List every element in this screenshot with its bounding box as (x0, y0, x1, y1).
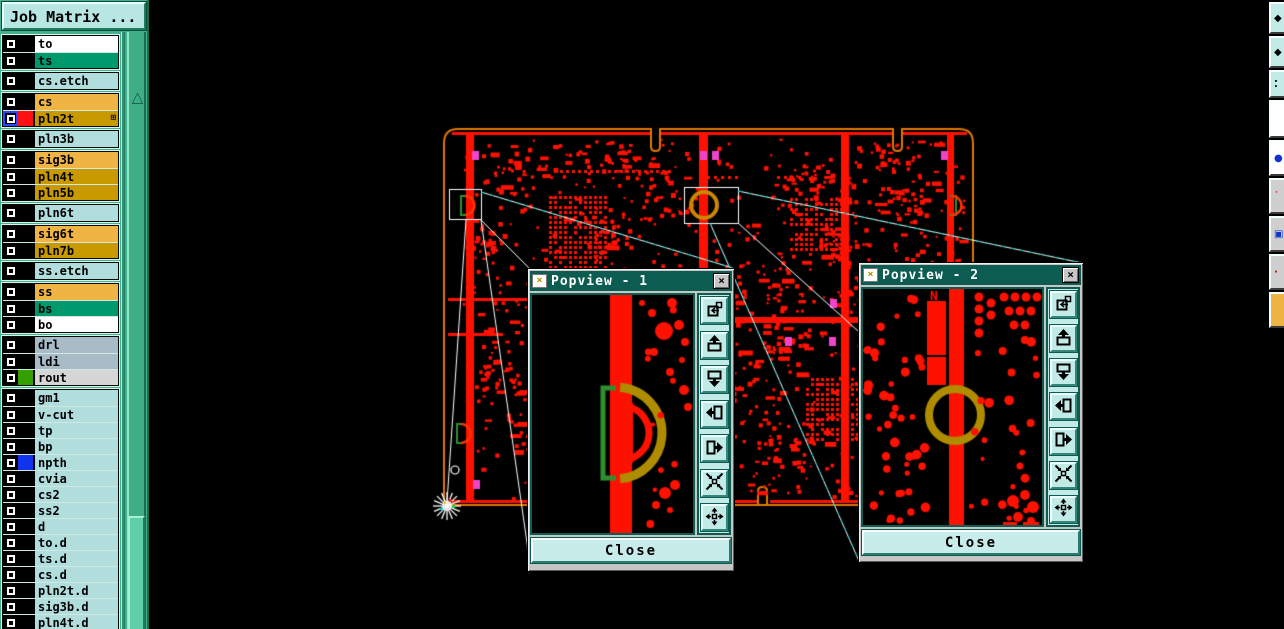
layer-color-swatch (18, 567, 33, 582)
zoom-out-button[interactable] (701, 504, 728, 531)
layer-checkbox[interactable] (3, 390, 18, 406)
side-button-1[interactable]: ◆ (1269, 2, 1284, 34)
detail-grid-icon[interactable]: ⊞ (111, 114, 116, 123)
layer-group: cs.etch (2, 72, 119, 90)
layer-label[interactable]: v-cut (33, 407, 118, 422)
zoom-out-button[interactable] (1050, 496, 1077, 523)
layer-group: ss.etch (2, 262, 119, 280)
checkbox-icon (7, 189, 15, 197)
layer-checkbox[interactable] (3, 583, 18, 598)
arrows-out-icon (1054, 498, 1073, 520)
layer-label[interactable]: sig6t (33, 226, 118, 242)
popview2-titlebar[interactable]: × Popview - 2 × (861, 265, 1081, 285)
checkbox-icon (7, 459, 15, 467)
side-button-9[interactable] (1269, 292, 1284, 328)
layer-label[interactable]: pln4t.d (33, 615, 118, 629)
layer-row-v-cut[interactable]: v-cut (3, 406, 118, 422)
layer-row-bp[interactable]: bp (3, 438, 118, 454)
zoom-in-button[interactable] (1050, 462, 1077, 489)
job-matrix-sidebar: Job Matrix ... totscs.etchcspln2t⊞pln3bs… (0, 0, 149, 629)
layer-color-swatch (18, 535, 33, 550)
layer-color-swatch (18, 131, 33, 147)
layer-checkbox[interactable] (3, 439, 18, 454)
layer-row-bs[interactable]: bs (3, 300, 118, 316)
layer-label[interactable]: cs.etch (33, 73, 118, 89)
checkbox-icon (7, 411, 15, 419)
side-button-3[interactable]: ⁚ (1269, 70, 1284, 98)
layer-checkbox[interactable] (3, 615, 18, 629)
side-button-8[interactable]: · (1269, 254, 1284, 290)
arrows-in-icon (1054, 464, 1073, 486)
layer-color-swatch (18, 615, 33, 629)
layer-label[interactable]: pln2t⊞ (33, 111, 118, 126)
layer-row-gm1[interactable]: gm1 (3, 390, 118, 406)
layer-color-swatch (18, 370, 33, 385)
side-button-7[interactable]: ▣ (1269, 216, 1284, 252)
checkbox-icon (7, 619, 15, 627)
layer-label[interactable]: ts (33, 53, 118, 68)
layer-label[interactable]: bs (33, 301, 118, 316)
layer-label[interactable]: npth (33, 455, 118, 470)
checkbox-icon (7, 358, 15, 366)
layer-label[interactable]: pln7b (33, 243, 118, 258)
layer-checkbox[interactable] (3, 471, 18, 486)
pan-down-icon (1054, 362, 1073, 384)
checkbox-icon (7, 173, 15, 181)
layer-color-swatch (18, 519, 33, 534)
layer-list: totscs.etchcspln2t⊞pln3bsig3bpln4tpln5bp… (2, 35, 119, 629)
checkbox-icon (7, 539, 15, 547)
layer-checkbox[interactable] (3, 73, 18, 89)
layer-row-pln6t[interactable]: pln6t (3, 205, 118, 221)
checkbox-icon (7, 491, 15, 499)
checkbox-icon (7, 98, 15, 106)
layer-checkbox[interactable] (3, 551, 18, 566)
arrows-out-icon (705, 507, 724, 529)
copy-view-button[interactable] (701, 297, 728, 324)
layer-checkbox[interactable] (3, 53, 18, 68)
checkbox-icon (7, 443, 15, 451)
close-icon[interactable]: × (713, 273, 730, 289)
side-button-6[interactable]: ˙ (1269, 178, 1284, 214)
layer-label[interactable]: pln5b (33, 185, 118, 200)
arrows-in-icon (705, 472, 724, 494)
checkbox-icon (7, 115, 15, 123)
layer-row-cs.d[interactable]: cs.d (3, 566, 118, 582)
checkbox-icon (7, 288, 15, 296)
layer-label[interactable]: d (33, 519, 118, 534)
layer-row-cs[interactable]: cs (3, 94, 118, 110)
checkbox-icon (7, 267, 15, 275)
layer-label[interactable]: pln6t (33, 205, 118, 221)
layer-checkbox[interactable] (3, 535, 18, 550)
layer-color-swatch (18, 243, 33, 258)
popview-window-2: × Popview - 2 × Close (858, 262, 1084, 563)
layer-group: sig6tpln7b (2, 225, 119, 259)
checkbox-icon (7, 427, 15, 435)
layer-checkbox[interactable] (3, 423, 18, 438)
close-button[interactable]: Close (862, 530, 1080, 555)
layer-row-sig6t[interactable]: sig6t (3, 226, 118, 242)
popview-window-1: × Popview - 1 × Close (527, 268, 735, 572)
layer-group: sig3bpln4tpln5b (2, 151, 119, 201)
layer-row-pln3b[interactable]: pln3b (3, 131, 118, 147)
layer-row-ts.d[interactable]: ts.d (3, 550, 118, 566)
scroll-up-icon[interactable]: △ (130, 88, 145, 106)
layer-checkbox[interactable] (3, 301, 18, 316)
pan-up-icon (1054, 328, 1073, 350)
pan-right-icon (705, 438, 724, 460)
layer-label[interactable]: cvia (33, 471, 118, 486)
checkbox-icon (7, 555, 15, 563)
layer-row-pln7b[interactable]: pln7b (3, 242, 118, 258)
layer-color-swatch (18, 263, 33, 279)
side-button-5[interactable]: ● (1269, 140, 1284, 176)
layer-label[interactable]: bo (33, 317, 118, 332)
layer-row-pln2t.d[interactable]: pln2t.d (3, 582, 118, 598)
layer-row-sig3b[interactable]: sig3b (3, 152, 118, 168)
layer-label[interactable]: rout (33, 370, 118, 385)
checkbox-icon (7, 394, 15, 402)
layer-label[interactable]: to (33, 36, 118, 52)
layer-label[interactable]: to.d (33, 535, 118, 550)
pan-right-button[interactable] (701, 435, 728, 462)
layer-color-swatch (18, 423, 33, 438)
checkbox-icon (7, 156, 15, 164)
checkbox-icon (7, 230, 15, 238)
layer-row-d[interactable]: d (3, 518, 118, 534)
layer-color-swatch (18, 226, 33, 242)
layer-row-ss2[interactable]: ss2 (3, 502, 118, 518)
layer-color-swatch (18, 205, 33, 221)
layer-checkbox[interactable] (3, 337, 18, 353)
layer-color-swatch (18, 185, 33, 200)
checkbox-icon (7, 341, 15, 349)
layer-label[interactable]: pln3b (33, 131, 118, 147)
zoom-in-button[interactable] (701, 470, 728, 497)
layer-checkbox[interactable] (3, 185, 18, 200)
pan-right-button[interactable] (1050, 428, 1077, 455)
layer-row-drl[interactable]: drl (3, 337, 118, 353)
layer-row-to.d[interactable]: to.d (3, 534, 118, 550)
layer-label[interactable]: sig3b.d (33, 599, 118, 614)
layer-row-ts[interactable]: ts (3, 52, 118, 68)
layer-checkbox[interactable] (3, 111, 18, 126)
layer-row-pln2t[interactable]: pln2t⊞ (3, 110, 118, 126)
layer-color-swatch (18, 152, 33, 168)
popview1-titlebar[interactable]: × Popview - 1 × (530, 271, 732, 291)
layer-group: cspln2t⊞ (2, 93, 119, 127)
copy-view-icon (1054, 294, 1073, 316)
side-button-4[interactable] (1269, 100, 1284, 138)
layer-row-sig3b.d[interactable]: sig3b.d (3, 598, 118, 614)
checkbox-icon (7, 40, 15, 48)
checkbox-icon (7, 305, 15, 313)
layer-label[interactable]: gm1 (33, 390, 118, 406)
checkbox-icon (7, 209, 15, 217)
layer-row-cs.etch[interactable]: cs.etch (3, 73, 118, 89)
pan-left-button[interactable] (1050, 393, 1077, 420)
layer-checkbox[interactable] (3, 519, 18, 534)
pan-right-icon (1054, 430, 1073, 452)
close-icon[interactable]: × (1062, 267, 1079, 283)
layer-color-swatch (18, 337, 33, 353)
checkbox-icon (7, 247, 15, 255)
layer-color-swatch (18, 169, 33, 184)
checkbox-icon (7, 77, 15, 85)
layer-label[interactable]: ts.d (33, 551, 118, 566)
layer-label[interactable]: sig3b (33, 152, 118, 168)
pan-left-button[interactable] (701, 401, 728, 428)
layer-group: pln3b (2, 130, 119, 148)
right-tool-strip: ◆◆⁚●˙▣· (1268, 0, 1284, 629)
popview1-title: Popview - 1 (551, 274, 648, 289)
layer-color-swatch (18, 583, 33, 598)
layer-color-swatch (18, 53, 33, 68)
layer-checkbox[interactable] (3, 599, 18, 614)
popview2-toolbar (1046, 287, 1080, 527)
pan-down-button[interactable] (1050, 359, 1077, 386)
layer-checkbox[interactable] (3, 243, 18, 258)
side-button-2[interactable]: ◆ (1269, 36, 1284, 68)
copy-view-button[interactable] (1050, 291, 1077, 318)
layer-color-swatch (18, 284, 33, 300)
window-menu-icon[interactable]: × (863, 268, 878, 282)
popview1-toolbar (697, 293, 731, 535)
pan-up-button[interactable] (1050, 325, 1077, 352)
checkbox-icon (7, 523, 15, 531)
layer-color-swatch (18, 301, 33, 316)
layer-color-swatch (18, 94, 33, 110)
layer-checkbox[interactable] (3, 455, 18, 470)
checkbox-icon (7, 57, 15, 65)
layer-color-swatch (18, 111, 33, 126)
layer-color-swatch (18, 551, 33, 566)
layer-group: drlldirout (2, 336, 119, 386)
layer-label[interactable]: drl (33, 337, 118, 353)
layer-checkbox[interactable] (3, 354, 18, 369)
layer-label[interactable]: ldi (33, 354, 118, 369)
checkbox-icon (7, 321, 15, 329)
layer-color-swatch (18, 599, 33, 614)
layer-color-swatch (18, 36, 33, 52)
layer-row-ss.etch[interactable]: ss.etch (3, 263, 118, 279)
layer-checkbox[interactable] (3, 263, 18, 279)
layer-group: tots (2, 35, 119, 69)
layer-color-swatch (18, 487, 33, 502)
checkbox-icon (7, 374, 15, 382)
layer-color-swatch (18, 471, 33, 486)
layer-color-swatch (18, 503, 33, 518)
layer-color-swatch (18, 439, 33, 454)
layer-checkbox[interactable] (3, 407, 18, 422)
layer-checkbox[interactable] (3, 226, 18, 242)
layer-color-swatch (18, 354, 33, 369)
layer-row-cvia[interactable]: cvia (3, 470, 118, 486)
layer-checkbox[interactable] (3, 370, 18, 385)
layer-group: gm1v-cuttpbpnpthcviacs2ss2dto.dts.dcs.dp… (2, 389, 119, 629)
checkbox-icon (7, 603, 15, 611)
popview1-viewport[interactable] (532, 295, 693, 533)
layer-color-swatch (18, 455, 33, 470)
layer-checkbox[interactable] (3, 567, 18, 582)
layer-label[interactable]: ss.etch (33, 263, 118, 279)
layer-label[interactable]: tp (33, 423, 118, 438)
layer-checkbox[interactable] (3, 205, 18, 221)
job-matrix-title-button[interactable]: Job Matrix ... (2, 2, 146, 30)
close-button[interactable]: Close (531, 538, 731, 563)
layer-label[interactable]: pln4t (33, 169, 118, 184)
layer-label[interactable]: ss (33, 284, 118, 300)
window-menu-icon[interactable]: × (532, 274, 547, 288)
layer-row-to[interactable]: to (3, 36, 118, 52)
layer-row-pln5b[interactable]: pln5b (3, 184, 118, 200)
layer-row-cs2[interactable]: cs2 (3, 486, 118, 502)
layer-label[interactable]: cs (33, 94, 118, 110)
layer-checkbox[interactable] (3, 94, 18, 110)
layer-label[interactable]: cs2 (33, 487, 118, 502)
popview2-viewport[interactable] (863, 289, 1042, 525)
checkbox-icon (7, 571, 15, 579)
popview2-title: Popview - 2 (882, 268, 979, 283)
layer-row-tp[interactable]: tp (3, 422, 118, 438)
checkbox-icon (7, 587, 15, 595)
pan-down-button[interactable] (701, 366, 728, 393)
pan-left-icon (1054, 396, 1073, 418)
checkbox-icon (7, 135, 15, 143)
layer-checkbox[interactable] (3, 131, 18, 147)
layer-row-rout[interactable]: rout (3, 369, 118, 385)
layer-label[interactable]: bp (33, 439, 118, 454)
layer-row-bo[interactable]: bo (3, 316, 118, 332)
layer-row-pln4t.d[interactable]: pln4t.d (3, 614, 118, 629)
checkbox-icon (7, 475, 15, 483)
layer-group: pln6t (2, 204, 119, 222)
layer-color-swatch (18, 317, 33, 332)
layer-row-npth[interactable]: npth (3, 454, 118, 470)
layer-checkbox[interactable] (3, 284, 18, 300)
layer-list-scrollbar[interactable]: △ (120, 32, 147, 629)
layer-color-swatch (18, 390, 33, 406)
scrollbar-thumb[interactable] (128, 516, 145, 629)
layer-label[interactable]: cs.d (33, 567, 118, 582)
layer-row-ss[interactable]: ss (3, 284, 118, 300)
layer-checkbox[interactable] (3, 169, 18, 184)
copy-view-icon (705, 300, 724, 322)
scrollbar-groove (121, 32, 125, 629)
layer-checkbox[interactable] (3, 152, 18, 168)
layer-label[interactable]: pln2t.d (33, 583, 118, 598)
layer-checkbox[interactable] (3, 317, 18, 332)
layer-color-swatch (18, 407, 33, 422)
layer-row-pln4t[interactable]: pln4t (3, 168, 118, 184)
layer-checkbox[interactable] (3, 487, 18, 502)
pan-down-icon (705, 369, 724, 391)
layer-checkbox[interactable] (3, 503, 18, 518)
layer-checkbox[interactable] (3, 36, 18, 52)
pan-up-icon (705, 334, 724, 356)
layer-color-swatch (18, 73, 33, 89)
pan-left-icon (705, 403, 724, 425)
layer-group: ssbsbo (2, 283, 119, 333)
layer-label[interactable]: ss2 (33, 503, 118, 518)
pan-up-button[interactable] (701, 332, 728, 359)
checkbox-icon (7, 507, 15, 515)
layer-row-ldi[interactable]: ldi (3, 353, 118, 369)
